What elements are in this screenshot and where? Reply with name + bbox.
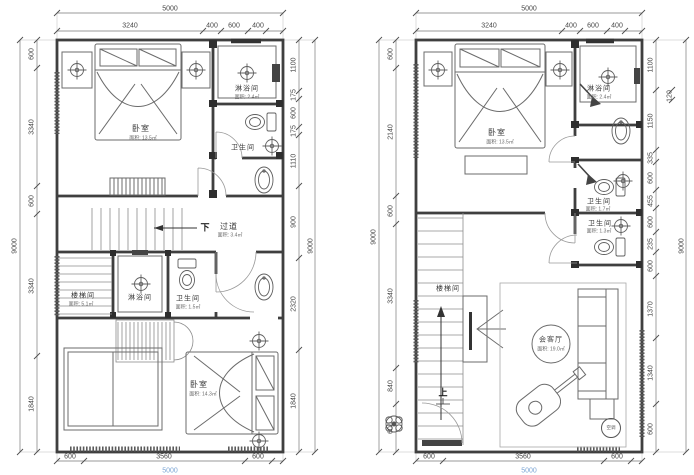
direction-down: 下 xyxy=(200,224,209,233)
room-area-stairwell-left: 面积: 5.1㎡ xyxy=(69,303,94,308)
dim-label: 400 xyxy=(565,23,577,30)
dim-label: 400 xyxy=(206,23,218,30)
dim-label: 3340 xyxy=(29,119,36,135)
dim-label: 600 xyxy=(29,48,36,60)
dim-label: 840 xyxy=(388,380,395,392)
room-label-stairwell-left: 楼梯间 xyxy=(71,293,95,300)
dim-label: 1100 xyxy=(291,57,298,72)
room-label-shower-top: 淋浴间 xyxy=(235,86,259,93)
dim-label: 235 xyxy=(648,238,655,250)
room-label-corridor: 过道 xyxy=(220,223,238,231)
dim-label: 1840 xyxy=(291,393,298,409)
extension-lines xyxy=(20,13,686,461)
dim-label: 600 xyxy=(291,107,298,119)
dim-label: 600 xyxy=(388,205,395,217)
dim-label: 5000 xyxy=(162,6,178,13)
dim-label: 900 xyxy=(291,216,298,228)
dim-label: 2320 xyxy=(291,296,298,312)
left-plan-walls xyxy=(57,40,283,452)
room-area-wc-upper: 面积: 1.7㎡ xyxy=(586,208,611,213)
dim-label: 600 xyxy=(64,454,76,461)
dim-label: 175 xyxy=(291,89,298,101)
room-area-wc-mid: 面积: 1.5㎡ xyxy=(176,306,201,311)
room-area-bedroom: 面积: 13.5㎡ xyxy=(486,141,514,146)
dim-label: 2140 xyxy=(388,124,395,140)
right-plan-furniture xyxy=(422,44,640,447)
dim-label: 1340 xyxy=(648,365,655,381)
dimension-ticks xyxy=(17,10,689,464)
dimension-lines xyxy=(20,13,686,461)
dim-label: 9000 xyxy=(371,229,378,245)
dim-label: 9000 xyxy=(12,238,19,254)
room-label-bedroom-bottom: 卧室 xyxy=(190,381,208,389)
room-label-wc-lower: 卫生间 xyxy=(588,221,612,228)
room-label-wc-upper: 卫生间 xyxy=(587,199,611,206)
dim-label: 5000 xyxy=(521,6,537,13)
dim-label-highlight: 5000 xyxy=(521,468,537,475)
dim-label: 3340 xyxy=(388,288,395,304)
dim-label-highlight: 5000 xyxy=(162,468,178,475)
room-area-living: 面积: 19.0㎡ xyxy=(537,348,565,353)
room-area-corridor: 面积: 3.4㎡ xyxy=(218,234,243,239)
room-label-bedroom-top: 卧室 xyxy=(132,125,150,133)
room-label-shower: 淋浴间 xyxy=(587,86,611,93)
floorplan-canvas: 卧室 面积: 13.5㎡ 淋浴间 面积: 2.4㎡ 卫生间 下 过道 面积: 3… xyxy=(0,0,694,473)
dim-label: 120 xyxy=(667,90,674,102)
dim-label: 1150 xyxy=(648,113,655,128)
dim-label: 600 xyxy=(29,195,36,207)
dim-label: 1110 xyxy=(291,154,298,169)
dim-label: 600 xyxy=(648,172,655,184)
down-arrow xyxy=(154,225,197,231)
room-label-stairwell-right: 楼梯间 xyxy=(436,286,460,293)
room-area-shower: 面积: 2.4㎡ xyxy=(587,96,612,101)
dim-label: 600 xyxy=(423,454,435,461)
dim-label: 600 xyxy=(388,48,395,60)
room-label-shower-mid: 淋浴间 xyxy=(128,295,152,302)
room-area-bedroom-top: 面积: 13.5㎡ xyxy=(129,137,157,142)
dim-label: 600 xyxy=(611,454,623,461)
dim-label: 1370 xyxy=(648,301,655,317)
dim-label: 1840 xyxy=(29,396,36,412)
dim-label: 1100 xyxy=(648,57,655,72)
left-plan-stairs xyxy=(58,208,193,362)
dim-label: 175 xyxy=(291,125,298,137)
dim-label: 600 xyxy=(648,423,655,435)
room-label-wc-top: 卫生间 xyxy=(231,145,255,152)
dim-label: 600 xyxy=(648,216,655,228)
room-label-bedroom: 卧室 xyxy=(488,129,506,137)
room-area-shower-top: 面积: 2.4㎡ xyxy=(235,96,260,101)
dim-label: 3340 xyxy=(29,278,36,294)
dim-label: 600 xyxy=(648,260,655,272)
dim-label: 9000 xyxy=(308,238,315,254)
direction-up: 上 xyxy=(438,389,447,398)
dim-label: 600 xyxy=(388,422,395,434)
up-arrow xyxy=(436,306,450,420)
dim-label: 400 xyxy=(611,23,623,30)
dim-label: 600 xyxy=(228,23,240,30)
dim-label: 600 xyxy=(587,23,599,30)
stair-landing xyxy=(463,296,506,362)
dim-label: 9000 xyxy=(679,238,686,254)
dim-label: 400 xyxy=(252,23,264,30)
room-label-wc-mid: 卫生间 xyxy=(176,296,200,303)
dim-label: 3560 xyxy=(156,454,172,461)
dim-label: 455 xyxy=(648,195,655,207)
room-area-wc-lower: 面积: 1.3㎡ xyxy=(587,230,612,235)
dim-label: 3560 xyxy=(515,454,531,461)
dim-label: 335 xyxy=(648,152,655,164)
ac-label: 空调 xyxy=(607,426,616,431)
left-plan-furniture xyxy=(62,44,280,434)
dim-label: 3240 xyxy=(481,23,497,30)
dim-label: 600 xyxy=(252,454,264,461)
room-label-living: 会客厅 xyxy=(539,337,563,344)
dim-label: 3240 xyxy=(122,23,138,30)
floorplan-drawing xyxy=(0,0,694,473)
room-area-bedroom-bottom: 面积: 14.3㎡ xyxy=(189,393,217,398)
